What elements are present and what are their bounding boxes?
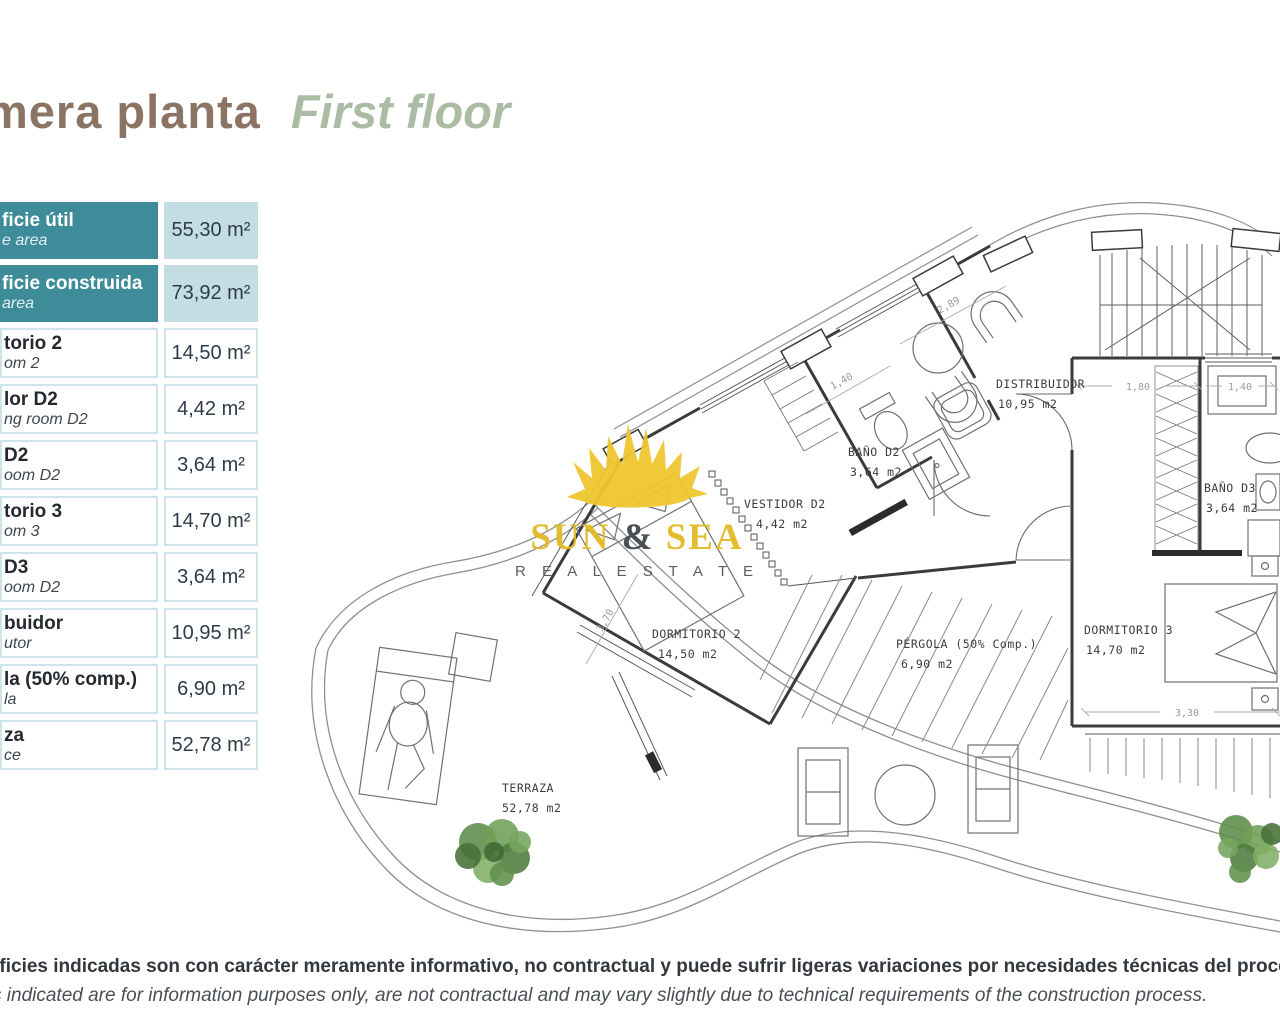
table-row: lor D2 ng room D2 4,42 m² [0,384,258,434]
table-row: ficie útil e area 55,30 m² [0,202,258,259]
row-value: 4,42 m² [164,384,258,434]
deck-slats [1090,738,1270,798]
sill-bar [645,751,662,773]
logo-tagline: R E A L E S T A T E [515,563,759,580]
tree [455,819,531,886]
row-value: 3,64 m² [164,440,258,490]
row-label-es: ficie construida [2,273,156,295]
room-area: 4,42 m2 [756,517,808,531]
side-table [449,633,498,682]
row-label: ficie construida area [0,265,158,322]
room-area: 14,70 m2 [1086,643,1145,657]
row-label: buidor utor [0,608,158,658]
door-arcs [934,394,1072,560]
room-label: DORMITORIO 3 [1084,623,1173,637]
row-label: la (50% comp.) la [0,664,158,714]
sill-bar [849,499,908,536]
row-label-es: torio 3 [4,501,154,523]
table-row: buidor utor 10,95 m² [0,608,258,658]
row-label-es: ficie útil [2,210,156,232]
row-value: 6,90 m² [164,664,258,714]
row-label-es: la (50% comp.) [4,669,154,691]
room-label: TERRAZA [502,781,554,795]
person-torso [386,700,430,749]
row-label-en: area [2,295,156,313]
disclaimer-en: s indicated are for information purposes… [0,985,1280,1007]
room-label: DORMITORIO 2 [652,627,741,641]
table-row: la (50% comp.) la 6,90 m² [0,664,258,714]
room-label: PÉRGOLA (50% Comp.) [896,636,1037,651]
areas-table: ficie útil e area 55,30 m² ficie constru… [0,202,258,770]
row-label-en: oom D2 [4,467,154,485]
row-label-en: oom D2 [4,579,154,597]
disclaimer-es: rficies indicadas son con carácter meram… [0,956,1280,978]
table-row: D3 oom D2 3,64 m² [0,552,258,602]
closet-hatch [764,362,838,451]
row-value: 52,78 m² [164,720,258,770]
row-label: za ce [0,720,158,770]
row-label-es: D3 [4,557,154,579]
row-label-en: la [4,691,154,709]
row-label: torio 3 om 3 [0,496,158,546]
dim-label: 3,30 [1175,708,1199,719]
row-value: 10,95 m² [164,608,258,658]
row-label: lor D2 ng room D2 [0,384,158,434]
wardrobe-hatch [1155,366,1198,552]
chair [963,283,1023,343]
table-row: za ce 52,78 m² [0,720,258,770]
row-label: D2 oom D2 [0,440,158,490]
dim-label: 1,80 [1126,382,1150,393]
sun-lounger [359,647,457,804]
row-label: ficie útil e area [0,202,158,259]
sink-d3 [1246,433,1280,463]
row-value: 55,30 m² [164,202,258,259]
room-area: 14,50 m2 [658,647,717,661]
row-label: D3 oom D2 [0,552,158,602]
logo-sun-text: SUN [530,517,610,558]
room-area: 6,90 m2 [901,657,953,671]
tree [1218,815,1280,883]
row-value: 14,50 m² [164,328,258,378]
logo-wordmark: SUN & SEA [530,517,743,558]
dim-label: 1,40 [829,371,855,392]
row-label-en: e area [2,232,156,250]
row-label-es: lor D2 [4,389,154,411]
table-row: D2 oom D2 3,64 m² [0,440,258,490]
row-value: 14,70 m² [164,496,258,546]
dim-label: 3,70 [595,608,617,634]
row-label-es: D2 [4,445,154,467]
row-label-en: om 3 [4,523,154,541]
row-label: torio 2 om 2 [0,328,158,378]
row-label-en: om 2 [4,355,154,373]
table-row: torio 2 om 2 14,50 m² [0,328,258,378]
dim-label: 2,89 [936,295,962,316]
row-value: 3,64 m² [164,552,258,602]
person-head [399,679,426,706]
table-row: ficie construida area 73,92 m² [0,265,258,322]
logo-sea-text: SEA [666,517,744,558]
room-label: VESTIDOR D2 [744,497,826,511]
row-label-en: utor [4,635,154,653]
room-area: 52,78 m2 [502,801,561,815]
logo-ampersand: & [610,517,665,558]
row-label-en: ng room D2 [4,411,154,429]
round-table [913,323,963,373]
shower [930,379,994,443]
row-label-es: buidor [4,613,154,635]
row-label-en: ce [4,747,154,765]
terrace-table [875,765,935,825]
row-label-es: za [4,725,154,747]
room-label: DISTRIBUIDOR [996,377,1085,391]
dim-label: 1,40 [1228,382,1252,393]
room-label: BAÑO D2 [848,444,900,459]
sill-bar [1152,550,1242,556]
room-area: 3,64 m2 [850,465,902,479]
disclaimer: rficies indicadas son con carácter meram… [0,956,1280,1007]
room-label: BAÑO D3 [1204,480,1256,495]
staircase [1100,244,1262,356]
table-row: torio 3 om 3 14,70 m² [0,496,258,546]
toilet-d3-bowl [1260,481,1276,503]
room-area: 10,95 m2 [998,397,1057,411]
shower-d3 [1248,520,1280,556]
row-label-es: torio 2 [4,333,154,355]
bed-3 [1165,556,1278,710]
row-value: 73,92 m² [164,265,258,322]
room-area: 3,64 m2 [1206,501,1258,515]
